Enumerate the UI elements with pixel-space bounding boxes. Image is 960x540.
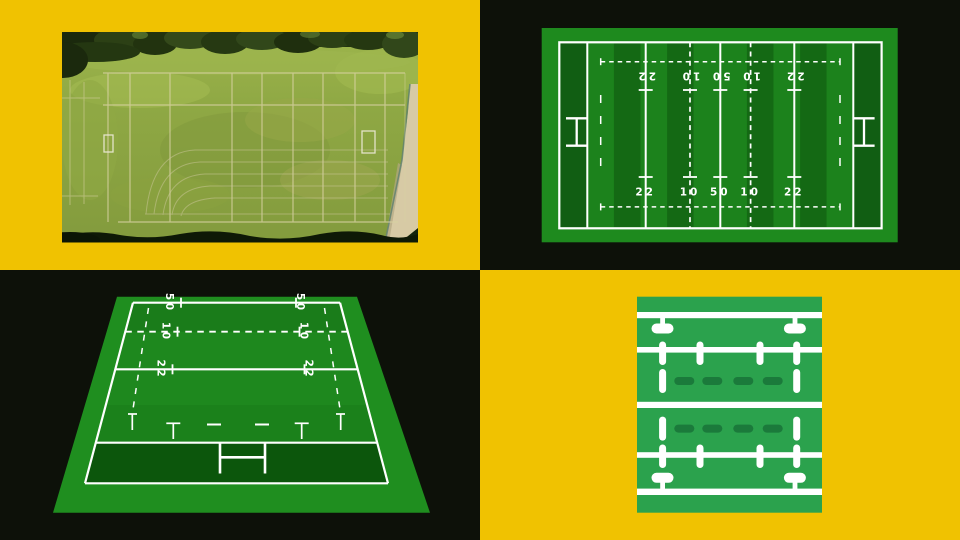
panel-pitch-icon [480,270,960,540]
photo-area [38,27,426,248]
rugby-pitch-icon [480,270,960,540]
label-10-bottom-right: 10 [740,187,761,199]
mow-band-1 [125,303,347,332]
label-22-bottom-left: 22 [635,187,656,199]
icon-post-mark-top-right [784,324,806,334]
label-10-right: 10 [297,322,309,342]
in-goal-area-right [853,43,880,227]
label-50-right: 50 [294,293,306,313]
label-22-top-right: 22 [784,69,805,81]
rugby-pitch-collage: 22 10 50 10 22 22 10 50 10 22 [0,0,960,540]
label-10-top-left: 10 [680,69,701,81]
in-goal-area-left [560,43,587,227]
label-22-top-left: 22 [635,69,656,81]
panel-pitch-perspective: 50 10 22 50 10 22 [0,270,480,540]
aerial-photo [0,0,480,270]
label-10-bottom-left: 10 [680,187,701,199]
rugby-pitch-perspective-diagram: 50 10 22 50 10 22 [0,270,480,540]
hedge-shadow [40,231,418,248]
panel-aerial-photo [0,0,480,270]
in-goal-area [85,443,388,484]
label-10-left: 10 [159,322,171,342]
label-50-top: 50 [710,69,731,81]
label-50-left: 50 [163,293,175,313]
panel-pitch-diagram: 22 10 50 10 22 22 10 50 10 22 [480,0,960,270]
mow-band-2 [96,405,377,443]
label-22-bottom-right: 22 [784,187,805,199]
label-22-left: 22 [154,359,166,379]
icon-post-mark-top-left [652,324,674,334]
label-50-bottom: 50 [710,187,731,199]
icon-halfway-line [637,402,822,408]
rugby-pitch-top-view-diagram: 22 10 50 10 22 22 10 50 10 22 [480,0,960,270]
label-22-right: 22 [302,359,314,379]
label-10-top-right: 10 [740,69,761,81]
icon-goal-line-bottom [637,489,822,495]
